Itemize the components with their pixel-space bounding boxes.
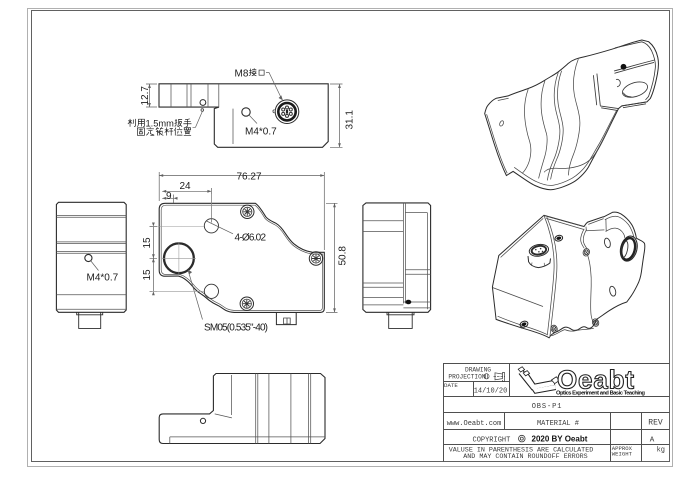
svg-text:REV: REV [648,419,663,428]
svg-text:DRAWING: DRAWING [465,366,491,373]
svg-text:50.8: 50.8 [338,246,349,266]
svg-text:15: 15 [142,269,153,281]
svg-text:31.1: 31.1 [345,110,356,130]
svg-text:kg: kg [657,447,665,455]
svg-text:PROJECTION: PROJECTION [448,374,485,381]
svg-text:M4*0.7: M4*0.7 [87,273,119,284]
svg-text:M4*0.7: M4*0.7 [245,127,277,138]
svg-text:9: 9 [166,191,172,202]
svg-text:12.7: 12.7 [140,86,151,106]
svg-text:MATERIAL #: MATERIAL # [537,420,579,428]
svg-text:WEIGHT: WEIGHT [612,451,633,458]
svg-text:2020 BY Oeabt: 2020 BY Oeabt [532,434,588,443]
svg-text:OBS-P1: OBS-P1 [532,403,563,411]
svg-text:76.27: 76.27 [237,172,262,183]
svg-text:M8: M8 [235,69,249,80]
svg-text:1.5mm: 1.5mm [146,118,175,128]
svg-text:COPYRIGHT: COPYRIGHT [473,436,511,444]
svg-text:15: 15 [142,237,153,249]
svg-text:Optics Experiment and Basic Te: Optics Experiment and Basic Teaching [556,391,646,397]
svg-text:www.Oeabt.com: www.Oeabt.com [447,420,502,428]
svg-text:DATE: DATE [444,382,458,389]
svg-text:AND MAY CONTAIN ROUNDOFF ERROR: AND MAY CONTAIN ROUNDOFF ERRORS [463,453,587,461]
svg-text:4-Ø6.02: 4-Ø6.02 [235,233,267,244]
svg-text:24: 24 [180,181,192,192]
svg-text:A: A [650,437,655,445]
svg-text:SM05(0.535"-40): SM05(0.535"-40) [204,323,268,334]
svg-text:14/10/20: 14/10/20 [474,388,508,396]
